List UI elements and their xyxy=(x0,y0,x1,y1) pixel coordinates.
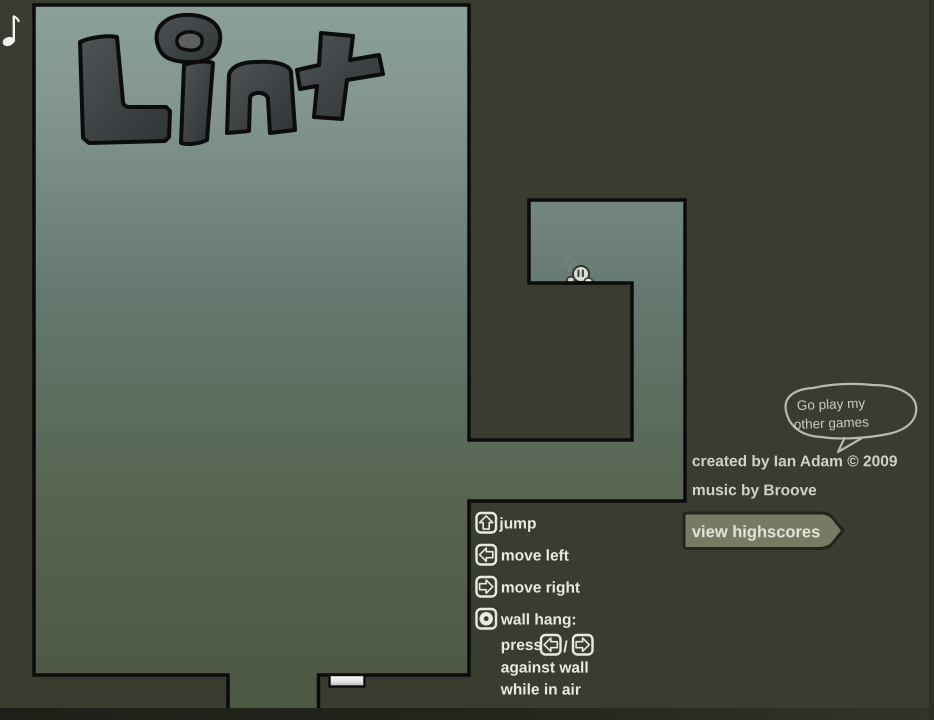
svg-text:/: / xyxy=(563,639,568,656)
svg-text:move right: move right xyxy=(501,580,580,597)
svg-text:against wall: against wall xyxy=(501,660,589,677)
svg-text:press: press xyxy=(501,637,542,654)
svg-text:while in air: while in air xyxy=(500,682,581,699)
svg-text:view highscores: view highscores xyxy=(692,523,820,541)
svg-text:music by Broove: music by Broove xyxy=(692,482,817,499)
svg-text:other games: other games xyxy=(794,414,870,432)
svg-text:created by Ian Adam © 2009: created by Ian Adam © 2009 xyxy=(692,453,898,470)
svg-text:Go play my: Go play my xyxy=(797,396,866,413)
svg-text:wall hang:: wall hang: xyxy=(500,612,577,629)
svg-text:move left: move left xyxy=(501,548,569,565)
svg-text:jump: jump xyxy=(498,516,536,533)
